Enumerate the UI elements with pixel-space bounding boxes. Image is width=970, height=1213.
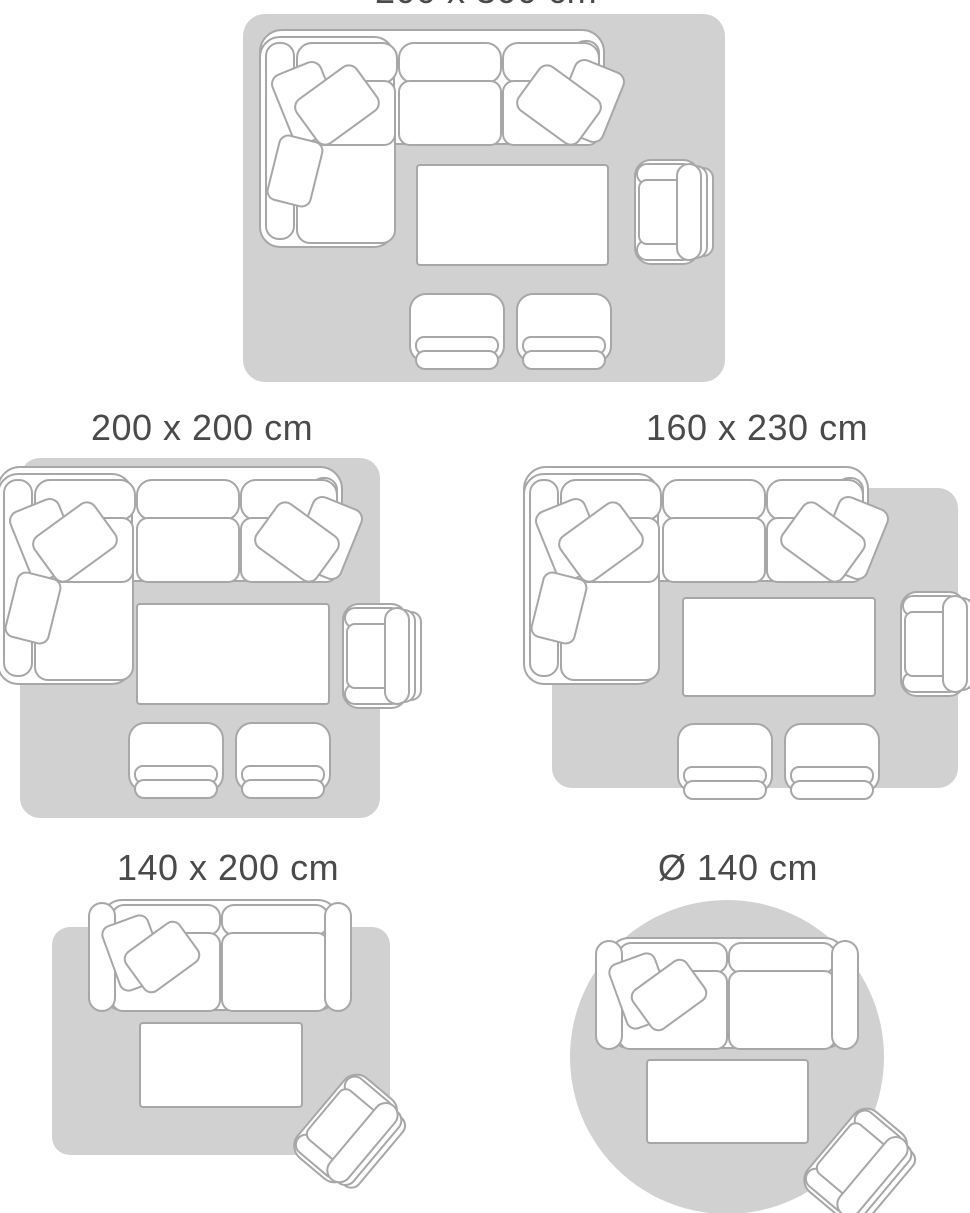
size-label-140x200: 140 x 200 cm: [117, 850, 339, 886]
armchair: [635, 160, 713, 264]
size-guide-illustration: [0, 0, 970, 1213]
layout-140x200: [52, 900, 414, 1198]
coffee-table: [647, 1060, 808, 1143]
pouf-right: [236, 723, 330, 798]
armchair: [901, 592, 970, 696]
layout-200x300: [243, 14, 725, 382]
layout-140-round: [570, 900, 924, 1213]
layout-160x230: [524, 467, 970, 799]
pouf-left: [678, 724, 772, 799]
armchair: [343, 604, 421, 708]
pouf-right: [785, 724, 879, 799]
size-label-200x200: 200 x 200 cm: [91, 410, 313, 446]
pouf-left: [129, 723, 223, 798]
coffee-table: [683, 598, 875, 696]
size-label-160x230: 160 x 230 cm: [646, 410, 868, 446]
pouf-left: [410, 294, 504, 369]
size-label-200x300: 200 x 300 cm: [375, 0, 597, 9]
two-seat-sofa: [89, 900, 351, 1011]
pouf-right: [517, 294, 611, 369]
size-label-140-round: Ø 140 cm: [658, 850, 818, 886]
two-seat-sofa: [596, 938, 858, 1049]
coffee-table: [140, 1023, 302, 1107]
coffee-table: [417, 165, 608, 265]
rug-size-guide-page: { "title": "rug size guide", "colors": {…: [0, 0, 970, 1213]
coffee-table: [137, 604, 329, 704]
layout-200x200: [0, 458, 421, 818]
